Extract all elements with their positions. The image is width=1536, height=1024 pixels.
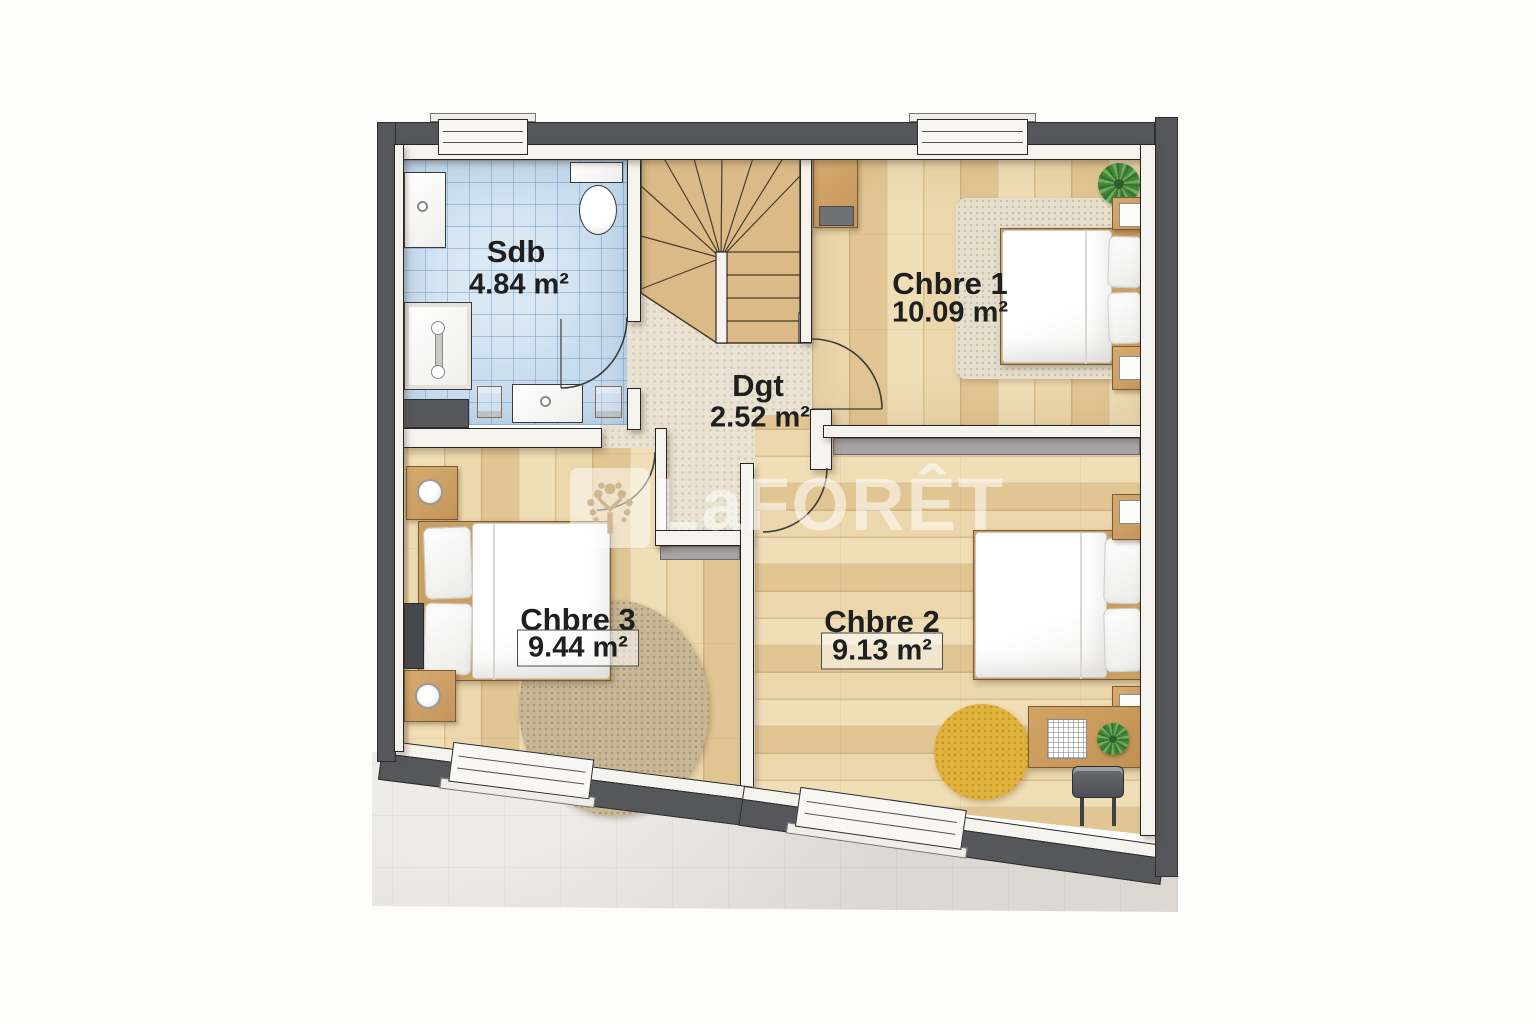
- tree-icon: [578, 474, 642, 542]
- toilet-tank: [570, 162, 623, 183]
- lamp-icon: [417, 479, 443, 505]
- bedroom1-bed-duvet: [1002, 230, 1112, 363]
- bedroom2-round-rug: [934, 704, 1030, 800]
- wall: [823, 425, 1143, 438]
- bedroom2-pillow: [1103, 608, 1143, 673]
- bedroom3-nightstand: [404, 670, 456, 722]
- bedroom3-pillow: [423, 602, 473, 675]
- room-area-chbre2: 9.13 m²: [821, 633, 943, 670]
- shower-knob: [431, 321, 445, 335]
- drain-icon: [417, 201, 428, 212]
- room-area-chbre1: 10.09 m²: [892, 297, 1008, 330]
- bedroom2-chair: [1072, 766, 1124, 798]
- lamp-icon: [415, 683, 441, 709]
- wall-inner-face: [1140, 144, 1156, 836]
- desk-chair-icon: [819, 206, 854, 226]
- chair-leg: [1080, 796, 1084, 826]
- wall: [810, 409, 832, 470]
- window-glass-line: [922, 142, 1022, 143]
- room-area-sdb: 4.84 m²: [469, 269, 569, 302]
- duvet-fold: [493, 524, 495, 680]
- window-glass-line: [443, 131, 524, 132]
- wall: [800, 155, 812, 343]
- notebook-icon: [1047, 719, 1087, 759]
- window: [917, 119, 1028, 155]
- shower-knob: [431, 365, 445, 379]
- duvet-fold: [1085, 231, 1087, 364]
- floor-plan: LaFORÊT Sdb 4.84 m² Chbre 1 10.09 m² Dgt…: [0, 0, 1536, 1024]
- laforet-logo-square: [570, 468, 650, 548]
- exterior-wall-right: [1155, 117, 1178, 877]
- wall: [401, 428, 602, 448]
- shower-icon: [404, 302, 472, 390]
- towel-rack-icon: [477, 386, 502, 418]
- bedroom1-pillow: [1107, 291, 1143, 344]
- room-area-dgt: 2.52 m²: [710, 402, 810, 435]
- window-glass-line: [443, 142, 524, 143]
- room-area-chbre3: 9.44 m²: [517, 630, 639, 667]
- window: [438, 119, 528, 155]
- wall-chimney: [401, 399, 469, 428]
- room-label-sdb: Sdb: [487, 234, 546, 270]
- room-label-dgt: Dgt: [732, 368, 784, 404]
- bedroom2-bed-duvet: [975, 532, 1107, 678]
- under-slope-strip: [660, 546, 740, 560]
- wall-inner-face: [394, 144, 404, 752]
- laforet-logo-text: LaFORÊT: [654, 462, 994, 548]
- bedroom1-pillow: [1107, 235, 1143, 288]
- chair-leg: [1112, 796, 1116, 826]
- under-slope-strip: [833, 438, 1140, 455]
- toilet-icon: [579, 185, 617, 235]
- tv-icon: [404, 603, 424, 669]
- bedroom2-pillow: [1103, 538, 1143, 605]
- bedroom3-pillow: [423, 526, 473, 600]
- duvet-fold: [1080, 533, 1082, 679]
- wall: [627, 155, 641, 322]
- bedroom3-nightstand: [406, 466, 458, 520]
- window-glass-line: [922, 131, 1022, 132]
- plant-icon: [1097, 723, 1129, 755]
- faucet-icon: [540, 396, 551, 407]
- bedroom1-desk: [813, 158, 858, 228]
- towel-rack-icon: [595, 386, 622, 418]
- wall: [627, 388, 641, 430]
